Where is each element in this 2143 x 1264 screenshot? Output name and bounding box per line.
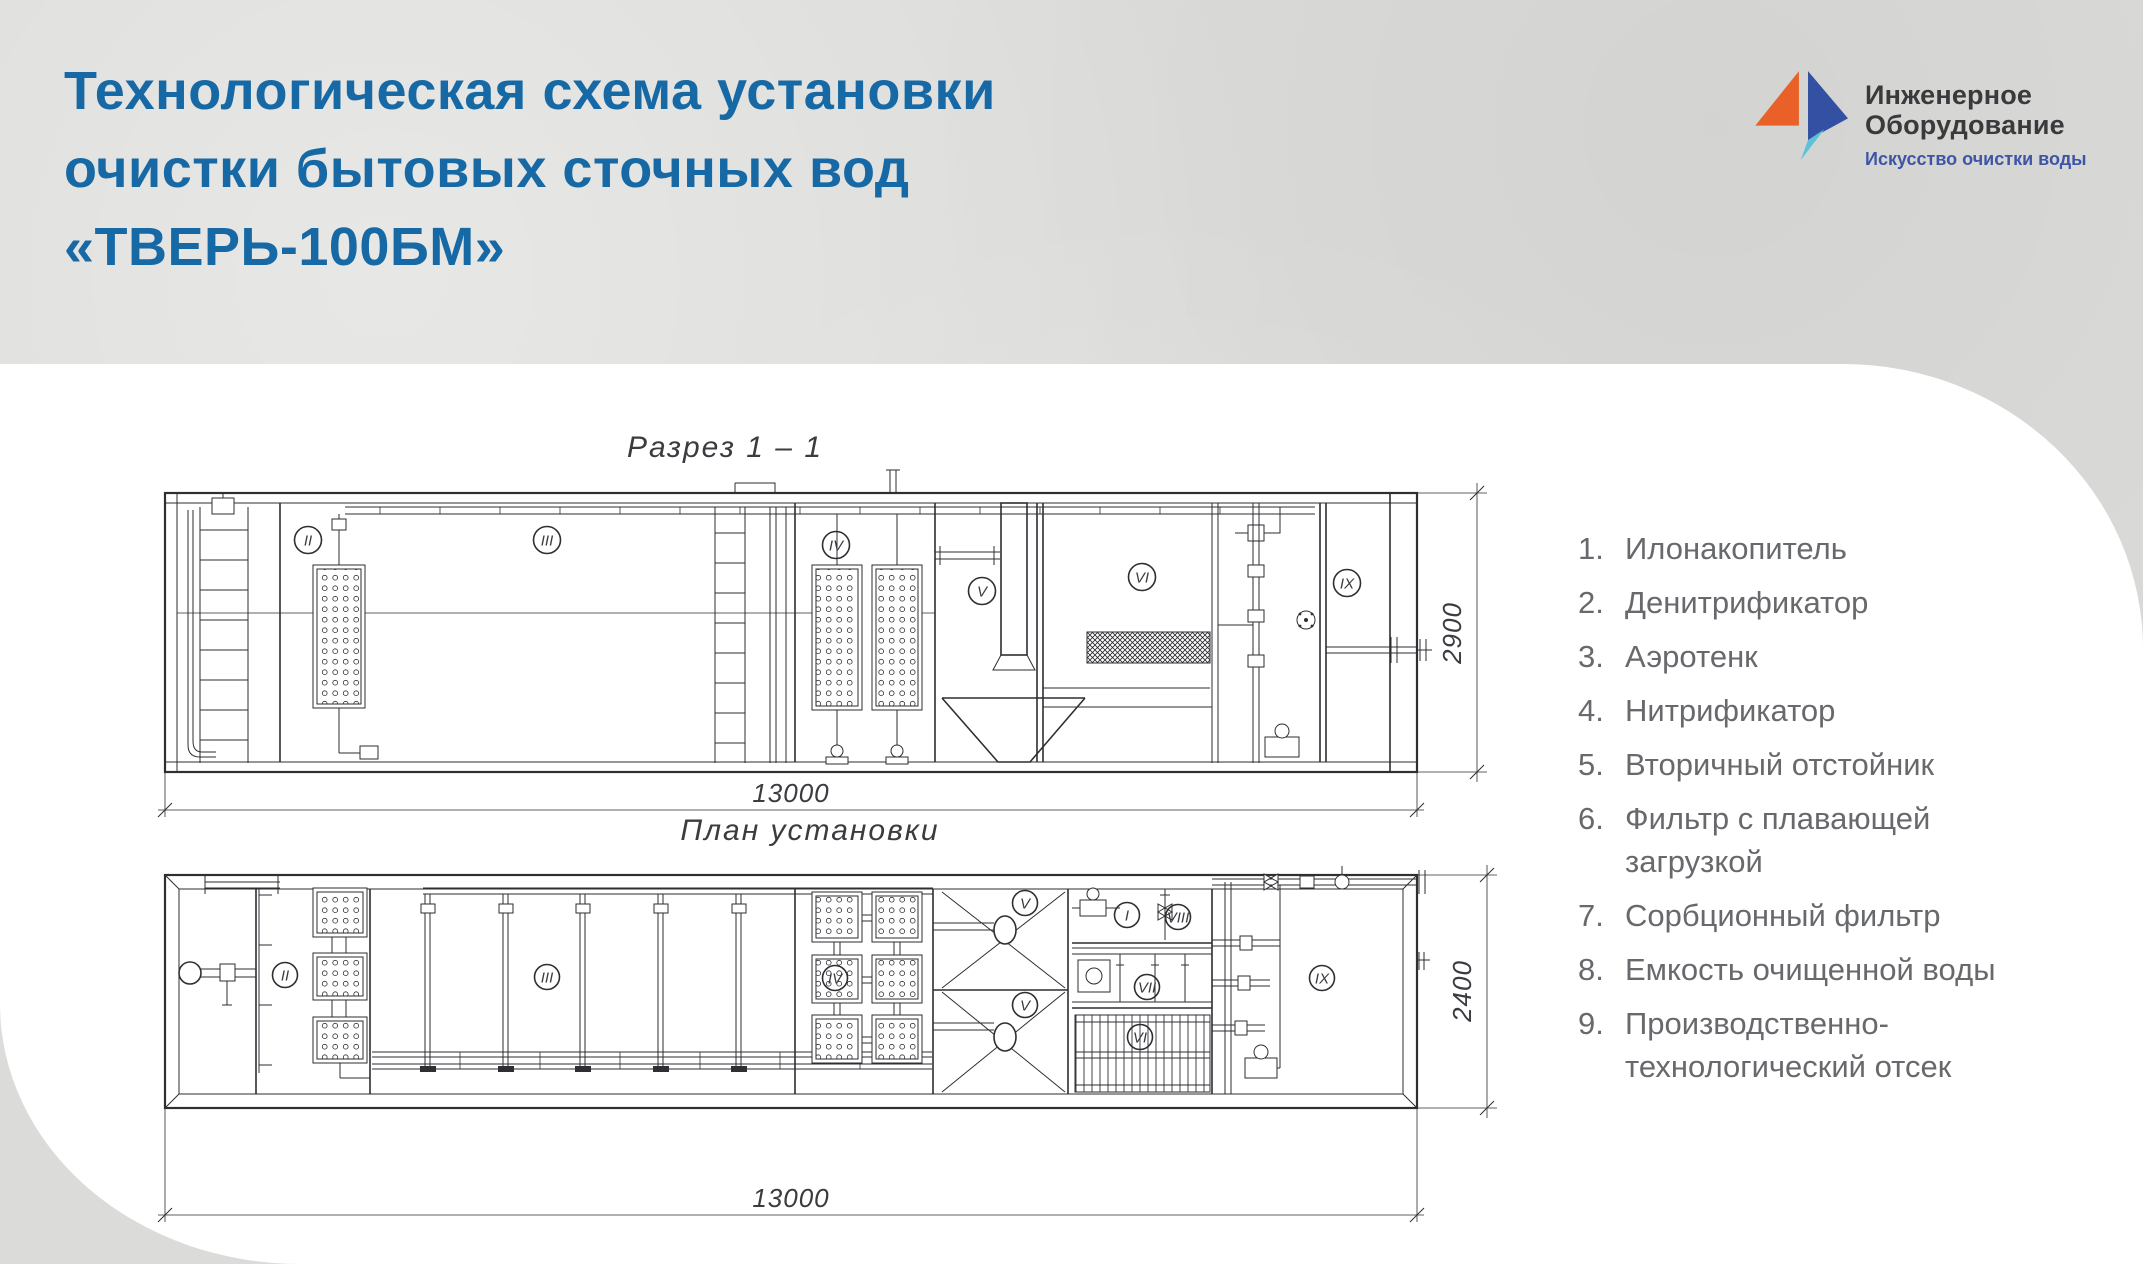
plan-label-IV-text: IV: [828, 970, 844, 987]
section-label-V: V: [969, 578, 996, 605]
legend-item-label: Нитрификатор: [1625, 689, 1835, 732]
air-manifold-pipe: [345, 507, 1315, 514]
aeration-cassette-section-1: [313, 514, 378, 759]
legend-item-number: 6.: [1578, 797, 1625, 883]
inlet-assembly-plan: [179, 962, 256, 1005]
section-label-V-text: V: [977, 583, 989, 600]
legend-item-label: Аэротенк: [1625, 635, 1758, 678]
plan-dim-width: 13000: [158, 1108, 1424, 1222]
section-label-III: III: [534, 527, 561, 554]
section-label-VI-text: VI: [1135, 569, 1149, 586]
page-title: Технологическая схема установки очистки …: [64, 52, 1464, 286]
plan-label-VII: VII: [1135, 975, 1160, 1000]
legend-item: 4. Нитрификатор: [1578, 689, 2118, 732]
logo-company-line-2: Оборудование: [1865, 110, 2087, 140]
section-dim-height-text: 2900: [1437, 602, 1467, 665]
blind-flange-icon: [1297, 611, 1315, 629]
legend-item: 7. Сорбционный фильтр: [1578, 894, 2118, 937]
plan-label-V-top: V: [1013, 891, 1038, 916]
plan-view-title: План установки: [680, 814, 939, 847]
pump-icon-section: [1265, 724, 1299, 757]
plan-view-drawing: План установки: [120, 800, 1560, 1262]
legend-item: 1. Илонакопитель: [1578, 527, 2118, 570]
legend-item-number: 8.: [1578, 948, 1625, 991]
section-label-II-text: II: [304, 532, 312, 549]
plan-label-VII-text: VII: [1138, 979, 1156, 996]
logo-orange-triangle: [1755, 71, 1799, 126]
plan-label-III: III: [535, 965, 560, 990]
legend-item-label: Емкость очищенной воды: [1625, 948, 1996, 991]
air-pipe-cluster: [1212, 503, 1264, 763]
section-label-IV: IV: [823, 532, 850, 559]
legend-item: 8. Емкость очищенной воды: [1578, 948, 2118, 991]
service-ladder-icon: [715, 507, 786, 763]
legend-item-label: Илонакопитель: [1625, 527, 1847, 570]
legend-item-number: 7.: [1578, 894, 1625, 937]
legend-item-label: Сорбционный фильтр: [1625, 894, 1940, 937]
floating-filter-media-band: [1043, 507, 1280, 707]
logo-blue-triangle: [1808, 71, 1848, 140]
section-label-II: II: [295, 527, 322, 554]
plan-label-IX-text: IX: [1315, 970, 1330, 987]
section-label-III-text: III: [541, 532, 554, 549]
plan-label-V-bottom: V: [1013, 993, 1038, 1018]
section-label-VI: VI: [1129, 564, 1156, 591]
logo-company-line-1: Инженерное: [1865, 80, 2087, 110]
legend-item-number: 1.: [1578, 527, 1625, 570]
clarifier-hoppers-plan: [933, 892, 1065, 1092]
legend-item-label: Вторичный отстойник: [1625, 743, 1934, 786]
logo-company-name: Инженерное Оборудование: [1865, 80, 2087, 140]
legend-item-number: 4.: [1578, 689, 1625, 732]
section-label-IV-text: IV: [829, 537, 845, 554]
legend-item: 3. Аэротенк: [1578, 635, 2118, 678]
plan-label-VIII-text: VIII: [1167, 909, 1190, 926]
aeration-cassette-plan-stack: [313, 888, 370, 1078]
aeration-cassette-section-3: [872, 514, 922, 764]
legend-item: 2. Денитрификатор: [1578, 581, 2118, 624]
legend-item: 5. Вторичный отстойник: [1578, 743, 2118, 786]
section-label-IX-text: IX: [1340, 575, 1355, 592]
section-label-IX: IX: [1334, 570, 1361, 597]
legend-item: 6. Фильтр с плавающей загрузкой: [1578, 797, 2118, 883]
plan-label-I-text: I: [1125, 907, 1129, 924]
legend-item: 9. Производственно-технологический отсек: [1578, 1002, 2118, 1088]
secondary-clarifier-section: [935, 503, 1085, 762]
logo-mark-icon: [1748, 62, 1848, 162]
plan-label-VI-text: VI: [1133, 1029, 1147, 1046]
title-line-2: очистки бытовых сточных вод: [64, 130, 1464, 208]
legend-item-label: Фильтр с плавающей загрузкой: [1625, 797, 2055, 883]
slide: Технологическая схема установки очистки …: [0, 0, 2143, 1264]
inlet-riser-pipe: [188, 493, 234, 757]
decant-pipe-plan: [205, 876, 280, 1073]
logo-tagline: Искусство очистки воды: [1865, 149, 2087, 170]
plan-dim-height: 2400: [1417, 865, 1497, 1118]
legend-item-label: Производственно-технологический отсек: [1625, 1002, 2055, 1088]
pump-icon-plan-room-I: [1072, 888, 1120, 916]
plan-label-IX: IX: [1310, 966, 1335, 991]
legend-item-number: 9.: [1578, 1002, 1625, 1088]
logo-text: Инженерное Оборудование Искусство очистк…: [1865, 80, 2087, 170]
section-dim-height: 2900: [1417, 483, 1487, 782]
legend-item-number: 3.: [1578, 635, 1625, 678]
plan-label-III-text: III: [541, 969, 554, 986]
plan-label-V-top-text: V: [1020, 895, 1032, 912]
legend: 1. Илонакопитель 2. Денитрификатор 3. Аэ…: [1578, 527, 2118, 1088]
title-line-3: «ТВЕРЬ-100БМ»: [64, 208, 1464, 286]
plan-label-V-bottom-text: V: [1020, 997, 1032, 1014]
filter-cassette-plan-room-VI: [1075, 1015, 1210, 1092]
legend-item-number: 2.: [1578, 581, 1625, 624]
section-view-drawing: Разрез 1 – 1: [120, 415, 1560, 845]
access-ladder-icon: [200, 507, 248, 763]
title-line-1: Технологическая схема установки: [64, 52, 1464, 130]
logo: Инженерное Оборудование Искусство очистк…: [1748, 58, 2128, 188]
plan-dim-width-text: 13000: [752, 1183, 829, 1213]
section-view-title: Разрез 1 – 1: [627, 431, 823, 464]
plan-label-II: II: [273, 963, 298, 988]
plan-label-VIII: VIII: [1166, 905, 1191, 930]
plan-label-I: I: [1115, 903, 1140, 928]
legend-item-label: Денитрификатор: [1625, 581, 1868, 624]
legend-item-number: 5.: [1578, 743, 1625, 786]
plan-dim-height-text: 2400: [1447, 960, 1477, 1023]
plan-label-II-text: II: [281, 967, 289, 984]
